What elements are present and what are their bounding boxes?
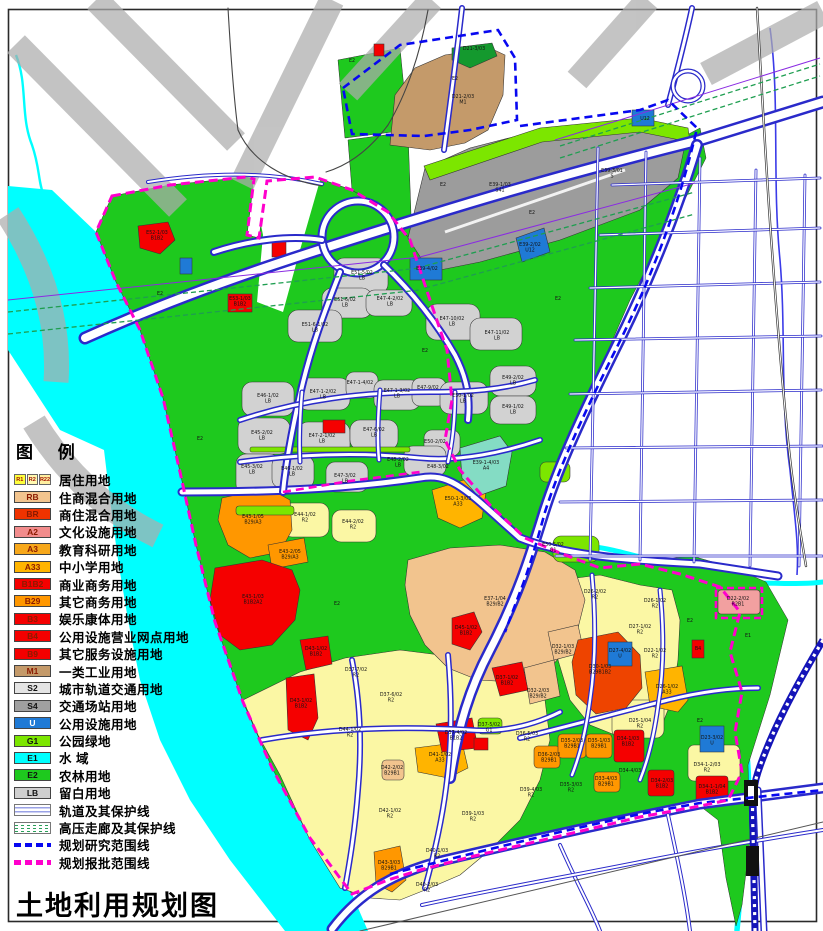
legend-label: 文化设施用地 bbox=[59, 522, 137, 541]
legend-item: B29其它商务用地 bbox=[14, 593, 239, 610]
legend-label: 商业商务用地 bbox=[59, 575, 137, 594]
legend-item: RB住商混合用地 bbox=[14, 488, 239, 505]
legend-label: 教育科研用地 bbox=[59, 540, 137, 559]
legend-swatch bbox=[14, 860, 51, 865]
legend-swatch: RB bbox=[14, 491, 51, 503]
legend-item: LB留白用地 bbox=[14, 784, 239, 801]
legend-label: 公用设施用地 bbox=[59, 714, 137, 733]
map-label: E47-9/02 bbox=[417, 385, 439, 391]
legend-swatch: R1R2R22 bbox=[14, 474, 51, 485]
legend-item: A33中小学用地 bbox=[14, 558, 239, 575]
parcel-b1b2 bbox=[323, 420, 345, 433]
parcel-b1b2 bbox=[374, 44, 384, 56]
legend-label: 规划报批范围线 bbox=[59, 853, 150, 872]
map-label: E2 bbox=[555, 296, 561, 302]
page-title: 土地利用规划图 bbox=[16, 884, 219, 923]
legend-swatch: B4 bbox=[14, 630, 51, 642]
legend: 图 例 R1R2R22居住用地RB住商混合用地BR商住混合用地A2文化设施用地A… bbox=[14, 438, 239, 871]
parcel-g1 bbox=[250, 447, 410, 452]
map-label: D32-1/03B29/B2 bbox=[552, 644, 574, 656]
page: { "title": "土地利用规划图", "legend": { "title… bbox=[0, 0, 823, 931]
map-label: D42-2/02B29B1 bbox=[381, 765, 403, 777]
legend-swatch bbox=[14, 804, 51, 816]
legend-item: BR商住混合用地 bbox=[14, 506, 239, 523]
legend-swatch: LB bbox=[14, 787, 51, 799]
parcel-b1b2 bbox=[474, 738, 488, 750]
map-label: E2 bbox=[452, 76, 458, 82]
legend-label: 城市轨道交通用地 bbox=[59, 679, 163, 698]
legend-swatch-r22: R22 bbox=[39, 474, 51, 485]
legend-swatch: B1B2 bbox=[14, 578, 51, 590]
legend-label: 住商混合用地 bbox=[59, 488, 137, 507]
legend-swatch: A2 bbox=[14, 526, 51, 538]
legend-label: 留白用地 bbox=[59, 783, 111, 802]
map-label: E43-2/05B29/A3 bbox=[279, 549, 301, 561]
parcel-u bbox=[180, 258, 192, 274]
legend-swatch: A33 bbox=[14, 561, 51, 573]
map-label: E2 bbox=[334, 601, 340, 607]
map-label: D21-3/03 bbox=[463, 46, 485, 52]
map-label: E43-1/03B1B2A2 bbox=[242, 594, 264, 606]
legend-swatch: U bbox=[14, 717, 51, 729]
map-label: U12 bbox=[640, 116, 650, 122]
legend-swatch bbox=[14, 843, 51, 848]
map-label: E39-4/02 bbox=[416, 266, 438, 272]
legend-label: 交通场站用地 bbox=[59, 696, 137, 715]
legend-swatch: E1 bbox=[14, 752, 51, 764]
legend-item: 高压走廊及其保护线 bbox=[14, 819, 239, 836]
map-label: E1 bbox=[745, 633, 751, 639]
legend-swatch: E2 bbox=[14, 769, 51, 781]
parcel-g1 bbox=[236, 506, 294, 515]
map-label: E37-1/04B29/B2 bbox=[484, 596, 506, 608]
map-label: E2 bbox=[349, 58, 355, 64]
legend-title: 图 例 bbox=[16, 438, 239, 463]
legend-swatch: G1 bbox=[14, 735, 51, 747]
legend-swatch: B29 bbox=[14, 595, 51, 607]
legend-label: 居住用地 bbox=[59, 470, 111, 489]
legend-swatch: BR bbox=[14, 508, 51, 520]
legend-label: 其它服务设施用地 bbox=[59, 644, 163, 663]
map-label: E2 bbox=[440, 182, 446, 188]
legend-item: S2城市轨道交通用地 bbox=[14, 680, 239, 697]
legend-label: 一类工业用地 bbox=[59, 662, 137, 681]
legend-item: E2农林用地 bbox=[14, 767, 239, 784]
legend-items: R1R2R22居住用地RB住商混合用地BR商住混合用地A2文化设施用地A3教育科… bbox=[14, 471, 239, 871]
legend-item: 轨道及其保护线 bbox=[14, 801, 239, 818]
map-label: D34-4/03 bbox=[619, 768, 641, 774]
legend-swatch: M1 bbox=[14, 665, 51, 677]
legend-label: 公用设施营业网点用地 bbox=[59, 627, 189, 646]
legend-item: A2文化设施用地 bbox=[14, 523, 239, 540]
legend-item: R1R2R22居住用地 bbox=[14, 471, 239, 488]
legend-swatch: S4 bbox=[14, 700, 51, 712]
map-label: E2 bbox=[687, 618, 693, 624]
legend-item: B9其它服务设施用地 bbox=[14, 645, 239, 662]
map-label: E48-3/02 bbox=[427, 464, 449, 470]
map-label: D43-3/03B29B1 bbox=[378, 860, 400, 872]
legend-label: 水 域 bbox=[59, 748, 89, 767]
legend-label: 农林用地 bbox=[59, 766, 111, 785]
map-label: D32-2/03B29/B2 bbox=[527, 688, 549, 700]
legend-item: 规划研究范围线 bbox=[14, 836, 239, 853]
map-label: E2 bbox=[529, 210, 535, 216]
map-label: B4 bbox=[695, 646, 701, 652]
map-label: D36-2/03B29B1 bbox=[538, 752, 560, 764]
legend-label: 娱乐康体用地 bbox=[59, 609, 137, 628]
legend-swatch: S2 bbox=[14, 682, 51, 694]
legend-item: S4交通场站用地 bbox=[14, 697, 239, 714]
legend-swatch: A3 bbox=[14, 543, 51, 555]
map-label: E47-1-4/02 bbox=[347, 380, 373, 386]
legend-label: 规划研究范围线 bbox=[59, 835, 150, 854]
legend-label: 中小学用地 bbox=[59, 557, 124, 576]
map-label: D30-1/03B29B1B2 bbox=[589, 664, 611, 676]
map-label: E50-2/02 bbox=[424, 439, 446, 445]
legend-label: 其它商务用地 bbox=[59, 592, 137, 611]
map-label: E2 bbox=[422, 348, 428, 354]
legend-label: 高压走廊及其保护线 bbox=[59, 818, 176, 837]
legend-swatch-r1: R1 bbox=[14, 474, 26, 485]
legend-item: M1一类工业用地 bbox=[14, 662, 239, 679]
legend-label: 轨道及其保护线 bbox=[59, 801, 150, 820]
map-label: E2 bbox=[157, 291, 163, 297]
legend-label: 商住混合用地 bbox=[59, 505, 137, 524]
legend-item: B4公用设施营业网点用地 bbox=[14, 628, 239, 645]
legend-item: G1公园绿地 bbox=[14, 732, 239, 749]
legend-swatch: B9 bbox=[14, 648, 51, 660]
legend-item: E1水 域 bbox=[14, 749, 239, 766]
legend-label: 公园绿地 bbox=[59, 731, 111, 750]
map-label: E2 bbox=[697, 718, 703, 724]
legend-item: B3娱乐康体用地 bbox=[14, 610, 239, 627]
rail-station bbox=[746, 846, 759, 876]
legend-swatch: B3 bbox=[14, 613, 51, 625]
legend-item: B1B2商业商务用地 bbox=[14, 575, 239, 592]
legend-item: 规划报批范围线 bbox=[14, 854, 239, 871]
map-label: E43-1/05B29/A3 bbox=[242, 514, 264, 526]
legend-item: U公用设施用地 bbox=[14, 714, 239, 731]
map-label: D35-2/03B29B1 bbox=[561, 738, 583, 750]
map-label: D33-4/03B29B1 bbox=[595, 776, 617, 788]
legend-swatch bbox=[14, 822, 51, 834]
legend-swatch-r2: R2 bbox=[27, 474, 39, 485]
legend-item: A3教育科研用地 bbox=[14, 541, 239, 558]
map-label: D35-1/03B29B1 bbox=[588, 738, 610, 750]
